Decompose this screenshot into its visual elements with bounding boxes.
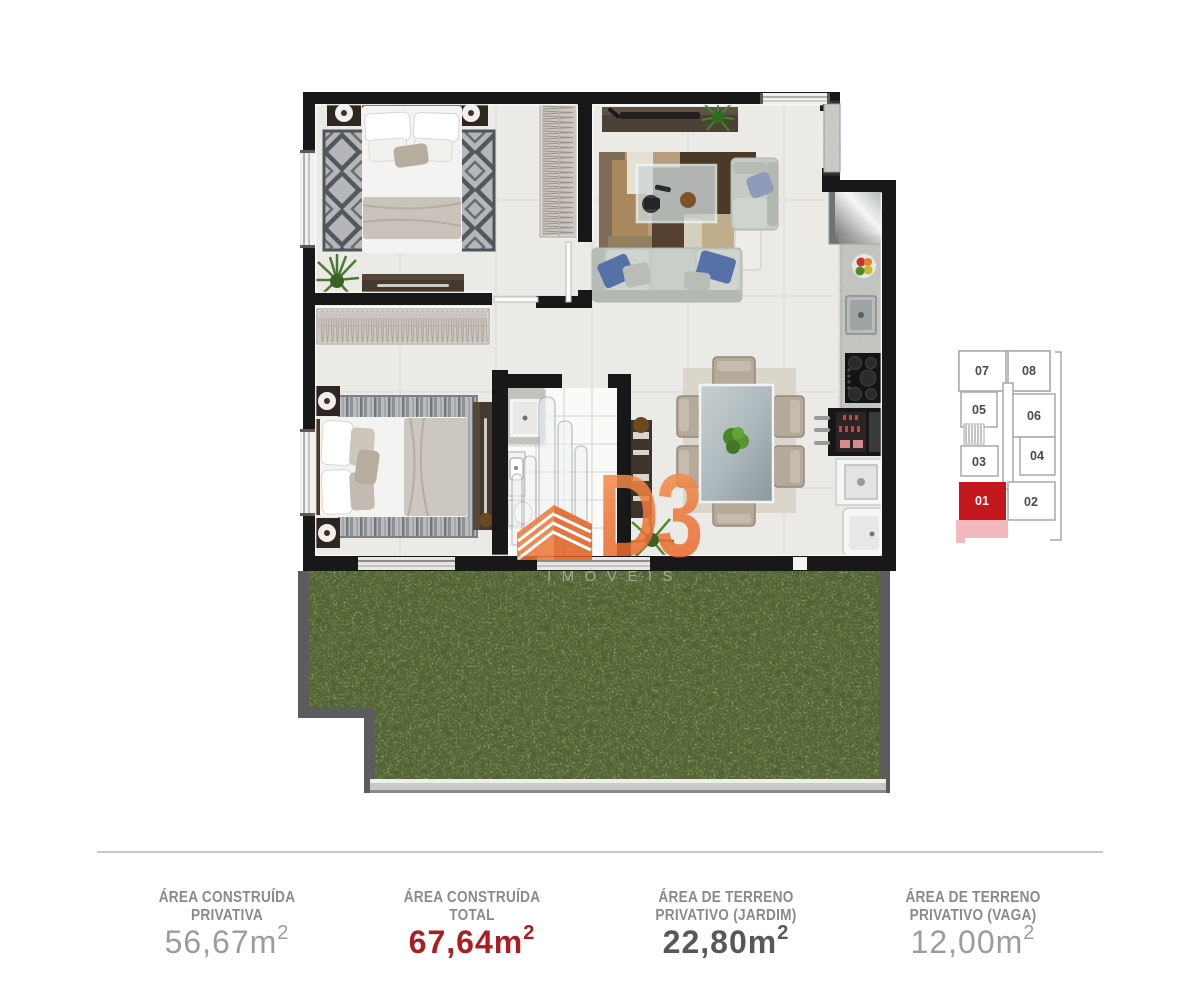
svg-text:67,64m2: 67,64m2 bbox=[409, 922, 536, 960]
svg-text:TOTAL: TOTAL bbox=[449, 907, 494, 924]
svg-text:06: 06 bbox=[1027, 409, 1041, 423]
svg-text:07: 07 bbox=[975, 364, 989, 378]
svg-text:PRIVATIVO (JARDIM): PRIVATIVO (JARDIM) bbox=[655, 907, 796, 924]
svg-text:22,80m2: 22,80m2 bbox=[663, 922, 790, 960]
svg-text:12,00m2: 12,00m2 bbox=[911, 922, 1036, 960]
svg-text:D3: D3 bbox=[598, 449, 701, 581]
svg-text:05: 05 bbox=[972, 403, 986, 417]
svg-text:ÁREA CONSTRUÍDA: ÁREA CONSTRUÍDA bbox=[404, 888, 541, 906]
svg-text:ÁREA DE TERRENO: ÁREA DE TERRENO bbox=[658, 888, 793, 906]
svg-text:IMÓVEIS: IMÓVEIS bbox=[547, 568, 683, 585]
svg-text:08: 08 bbox=[1022, 364, 1036, 378]
svg-text:ÁREA DE TERRENO: ÁREA DE TERRENO bbox=[905, 888, 1040, 906]
svg-text:56,67m2: 56,67m2 bbox=[165, 922, 290, 960]
svg-text:PRIVATIVA: PRIVATIVA bbox=[191, 907, 263, 924]
svg-text:03: 03 bbox=[972, 455, 986, 469]
svg-text:02: 02 bbox=[1024, 495, 1038, 509]
svg-text:01: 01 bbox=[975, 494, 989, 508]
svg-text:04: 04 bbox=[1030, 449, 1044, 463]
svg-text:PRIVATIVO (VAGA): PRIVATIVO (VAGA) bbox=[910, 907, 1037, 924]
svg-text:ÁREA CONSTRUÍDA: ÁREA CONSTRUÍDA bbox=[159, 888, 296, 906]
